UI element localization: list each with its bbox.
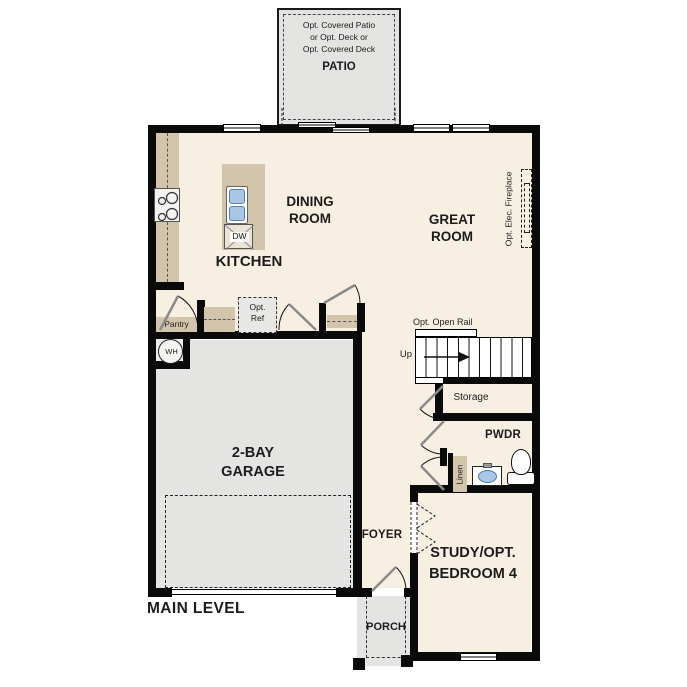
garage-door-dashed-area [165,495,351,588]
dining-room-label: DINING ROOM [270,193,350,227]
wall-pwdr-left-stub [440,448,447,466]
patio-option-note: Opt. Covered Patio or Opt. Deck or Opt. … [279,19,399,55]
coat-closet-shelf-line [327,321,357,322]
counter-centerline-upper [167,133,168,188]
stair-half-wall [415,377,444,384]
sink-basin-top [229,189,245,204]
wall-study-left-upper [410,485,418,502]
porch-post-bottom-right [401,655,413,667]
water-heater-icon: WH [158,339,183,364]
foyer-label: FOYER [356,529,408,542]
optional-fireplace-inner [524,183,530,233]
opt-open-rail-label: Opt. Open Rail [413,317,483,327]
wall-garage-bottom-left [148,588,172,597]
wall-study-top [410,485,540,493]
window-study [460,653,497,661]
wall-pwdr-top [433,413,540,421]
great-room-label: GREAT ROOM [412,211,492,245]
fireplace-label: Opt. Elec. Fireplace [505,161,515,256]
window-great-left [413,124,450,132]
garage-door-opening [172,589,336,595]
opt-ref-line2: Ref [239,313,276,324]
counter-centerline-lower [167,222,168,282]
pantry-label: Pantry [156,320,197,330]
island-sink-icon [226,186,248,224]
optional-refrigerator: Opt. Ref [238,297,277,333]
up-label: Up [396,350,416,361]
wall-right [532,125,540,661]
wall-foyer-bottom-right [404,588,418,597]
study-label: STUDY/OPT. BEDROOM 4 [414,543,532,585]
wall-closet-right [357,303,365,332]
sink-basin-bottom [229,206,245,221]
patio-label: PATIO [279,61,399,73]
pantry-counter-centerline [204,319,235,320]
window-dining [223,124,261,132]
dishwasher-icon: DW [224,224,253,249]
porch-post-bottom-left [353,658,365,670]
wall-kitchen-stub [156,282,184,290]
dishwasher-label: DW [230,232,249,242]
wall-closet-left [319,303,326,332]
staircase [415,337,532,378]
wall-garage-right [353,331,362,597]
water-heater-label: WH [159,348,184,357]
sliding-door-left [298,122,336,128]
linen-closet: Linen [453,456,467,492]
powder-faucet [483,463,492,468]
wall-storage-top [443,377,540,384]
patio-area: Opt. Covered Patio or Opt. Deck or Opt. … [277,8,401,126]
opt-ref-line1: Opt. [239,302,276,313]
porch-label: PORCH [363,621,409,634]
pwdr-label: PWDR [480,429,526,442]
wall-foyer-bottom-left [353,588,372,597]
toilet-bowl-icon [511,449,531,475]
stair-rail [415,329,477,337]
floor-plan: Opt. Covered Patio or Opt. Deck or Opt. … [0,0,687,687]
window-great-right [452,124,490,132]
storage-label: Storage [448,392,494,404]
main-level-title: MAIN LEVEL [147,600,267,618]
kitchen-label: KITCHEN [203,253,295,270]
powder-vanity [472,466,502,486]
cooktop-icon [154,188,180,222]
pantry-label-strip: Pantry [156,317,197,332]
sliding-door-right [332,127,370,133]
garage-label: 2-BAY GARAGE [203,444,303,482]
linen-label: Linen [455,457,464,493]
powder-sink-icon [478,470,497,483]
